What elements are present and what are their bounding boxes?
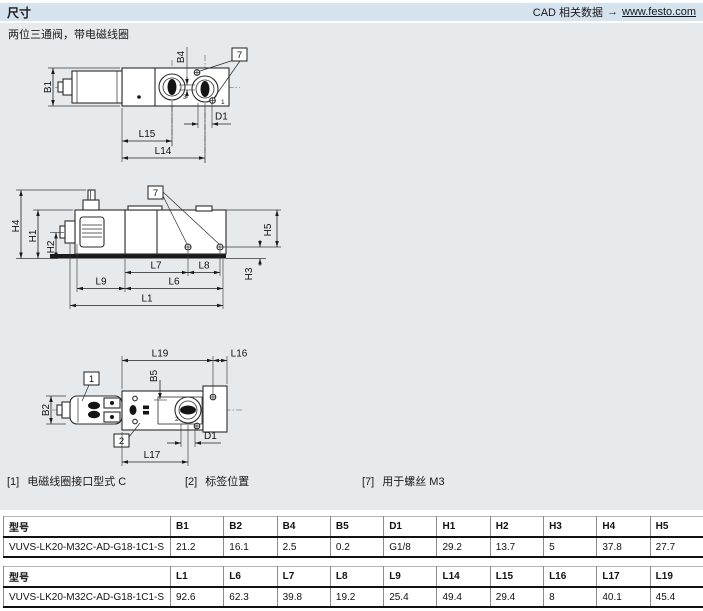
footnote-7-text: 用于螺丝 M3 [382,476,444,488]
screw-side-1 [185,244,191,250]
cell: 13.7 [490,537,543,557]
col-header: H3 [544,517,597,538]
footnote-1-ref: [1] [7,476,19,488]
dim-label-b5: B5 [149,369,160,382]
dimension-drawings: 3 1 7 B1 [0,40,703,485]
dim-label-b2: B2 [41,403,52,416]
col-header-model: 型号 [4,517,171,538]
model-name-cell: VUVS-LK20-M32C-AD-G18-1C1-S [4,587,171,607]
dim-label-l9: L9 [95,277,107,288]
table-row: VUVS-LK20-M32C-AD-G18-1C1-S 92.6 62.3 39… [4,587,703,607]
footnote-1-text: 电磁线圈接口型式 C [27,476,126,488]
col-header: L8 [330,567,383,588]
dimension-tables: 型号 B1 B2 B4 B5 D1 H1 H2 H3 H4 H5 VUVS-LK… [3,516,703,611]
col-header: L14 [437,567,490,588]
festo-link[interactable]: www.festo.com [622,6,696,18]
footnote-2: [2]标签位置 [185,473,249,489]
col-header: B2 [224,517,277,538]
page-title: 尺寸 [7,4,31,21]
callout-2-label: 2 [119,436,124,447]
col-header: H4 [597,517,650,538]
table-row: 型号 L1 L6 L7 L8 L9 L14 L15 L16 L17 L19 [4,567,703,588]
footnote-7-ref: [7] [362,476,374,488]
cell: 37.8 [597,537,650,557]
cell: 16.1 [224,537,277,557]
col-header: H5 [650,517,703,538]
port-label-2: 2 [175,416,179,423]
dim-label-l1: L1 [141,294,153,305]
col-header: L9 [384,567,437,588]
dim-label-b4: B4 [176,50,187,63]
cell: 2.5 [277,537,330,557]
header-bar: 尺寸 CAD 相关数据 → www.festo.com [0,3,703,21]
callout-7-label: 7 [237,50,242,61]
drawing-side-view: 7 H4 H1 H2 H5 H3 [11,186,281,309]
cell: G1/8 [384,537,437,557]
footnotes: [1]电磁线圈接口型式 C [2]标签位置 [7]用于螺丝 M3 [0,473,703,489]
cell: 25.4 [384,587,437,607]
drawing-top-view: 3 1 7 B1 [43,47,247,163]
table-b-h-dimensions: 型号 B1 B2 B4 B5 D1 H1 H2 H3 H4 H5 VUVS-LK… [3,516,703,558]
dim-label-l6: L6 [168,277,180,288]
dim-label-l16: L16 [231,349,248,360]
screw-top-2 [210,98,216,104]
col-header: H2 [490,517,543,538]
col-header: B5 [330,517,383,538]
col-header: L16 [544,567,597,588]
dim-label-d1-bottom: D1 [204,431,217,442]
col-header: H1 [437,517,490,538]
screw-side-2 [217,244,223,250]
dim-label-l8: L8 [198,261,210,272]
dim-label-l15: L15 [139,129,156,140]
col-header: L19 [650,567,703,588]
col-header: B4 [277,517,330,538]
col-header-model: 型号 [4,567,171,588]
dim-label-h1: H1 [28,229,39,242]
dim-label-l14: L14 [155,146,172,157]
dim-label-l19: L19 [152,349,169,360]
model-name-cell: VUVS-LK20-M32C-AD-G18-1C1-S [4,537,171,557]
col-header: L1 [171,567,224,588]
cell: 19.2 [330,587,383,607]
cell: 40.1 [597,587,650,607]
dim-label-l7: L7 [150,261,162,272]
cell: 29.2 [437,537,490,557]
page: 尺寸 CAD 相关数据 → www.festo.com 两位三通阀，带电磁线圈 [0,0,703,611]
cell: 21.2 [171,537,224,557]
cell: 5 [544,537,597,557]
cell: 0.2 [330,537,383,557]
cell: 8 [544,587,597,607]
table-row: 型号 B1 B2 B4 B5 D1 H1 H2 H3 H4 H5 [4,517,703,538]
dim-label-h2: H2 [46,240,57,253]
dim-label-h3: H3 [244,267,255,280]
dim-label-b1: B1 [43,80,54,93]
col-header: L6 [224,567,277,588]
cell: 27.7 [650,537,703,557]
footnote-7: [7]用于螺丝 M3 [362,473,445,489]
cad-data-label: CAD 相关数据 [533,4,603,20]
cell: 92.6 [171,587,224,607]
cell: 62.3 [224,587,277,607]
col-header: B1 [171,517,224,538]
port-label-1: 1 [221,99,225,106]
table-row: VUVS-LK20-M32C-AD-G18-1C1-S 21.2 16.1 2.… [4,537,703,557]
dim-label-d1-top: D1 [215,112,228,123]
col-header: D1 [384,517,437,538]
cell: 39.8 [277,587,330,607]
footnote-2-text: 标签位置 [205,476,249,488]
drawings-panel: 两位三通阀，带电磁线圈 [0,23,703,510]
callout-1-label: 1 [89,374,94,385]
callout-7-side-label: 7 [153,188,158,199]
cell: 45.4 [650,587,703,607]
drawing-bottom-view: 2 1 2 [41,349,248,467]
cell: 49.4 [437,587,490,607]
col-header: L7 [277,567,330,588]
col-header: L15 [490,567,543,588]
footnote-1: [1]电磁线圈接口型式 C [7,473,126,489]
arrow-right-icon: → [607,6,618,18]
dim-label-h4: H4 [11,219,22,232]
screw-top-1 [194,70,200,76]
footnote-2-ref: [2] [185,476,197,488]
cell: 29.4 [490,587,543,607]
col-header: L17 [597,567,650,588]
table-l-dimensions: 型号 L1 L6 L7 L8 L9 L14 L15 L16 L17 L19 VU… [3,566,703,608]
dim-label-h5: H5 [263,223,274,236]
cad-data-area: CAD 相关数据 → www.festo.com [533,4,696,20]
screw-bottom-1 [210,394,216,400]
dim-label-l17: L17 [144,450,161,461]
port-label-3: 3 [183,94,187,101]
